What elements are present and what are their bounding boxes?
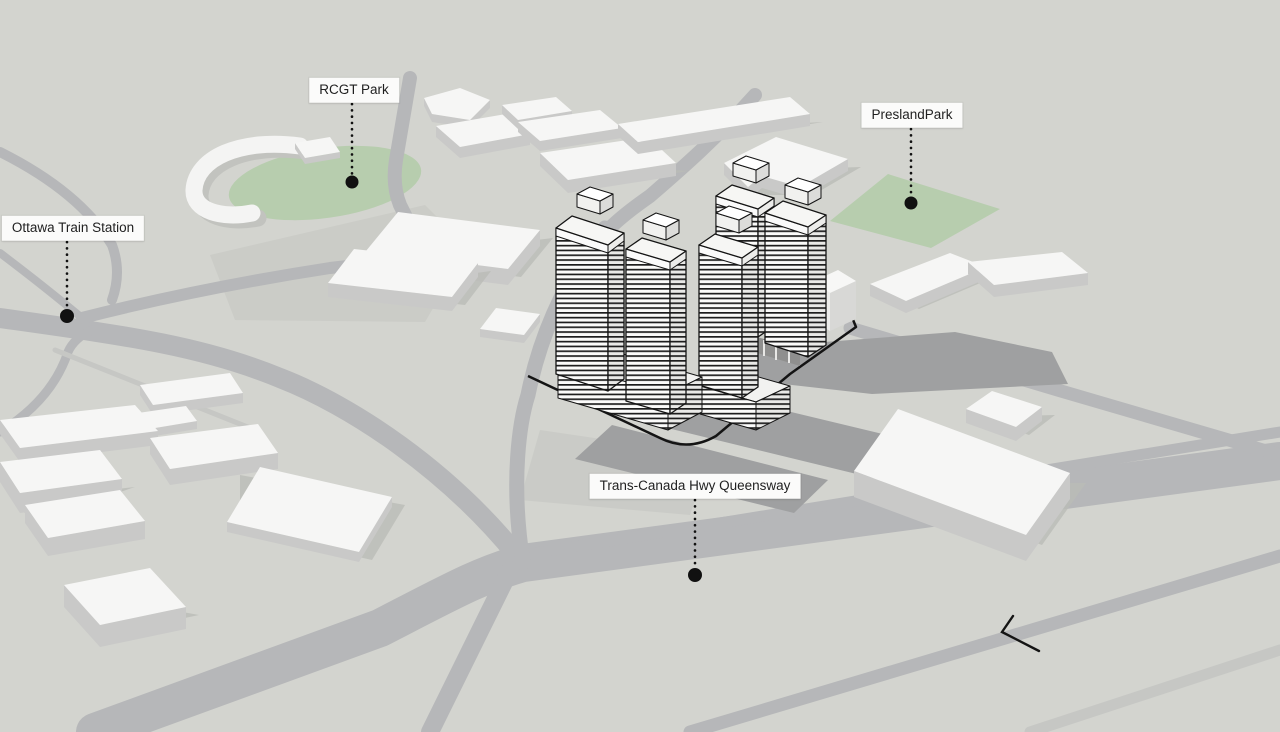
leader-dot — [61, 310, 74, 323]
leader-dot — [689, 569, 702, 582]
label-presland-park: PreslandPark — [861, 103, 962, 128]
leader-dot — [346, 176, 358, 188]
label-trans-canada-hwy: Trans-Canada Hwy Queensway — [590, 474, 801, 499]
site-plan-canvas — [0, 0, 1280, 732]
leader-dot — [905, 197, 917, 209]
site-plan-illustration: RCGT Park PreslandPark Ottawa Train Stat… — [0, 0, 1280, 732]
label-rcgt-park: RCGT Park — [309, 78, 399, 103]
label-ottawa-train-station: Ottawa Train Station — [2, 216, 144, 241]
